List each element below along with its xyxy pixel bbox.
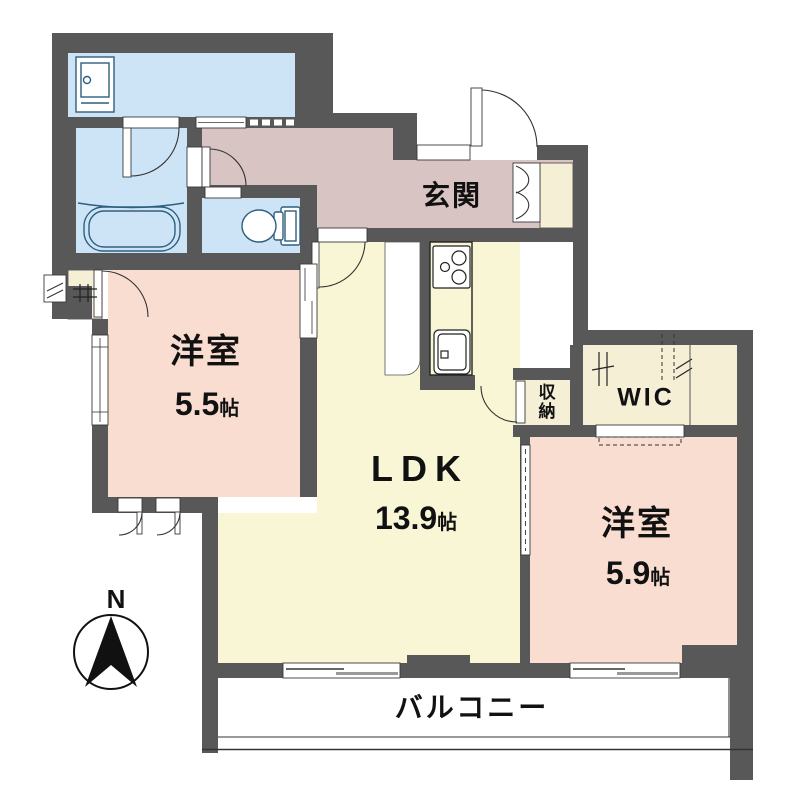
service-door-opening [118,498,142,512]
ldk-size-unit: 帖 [437,512,457,534]
kitchen-pass-counter [385,242,420,375]
entrance-label: 玄関 [422,182,482,210]
bedroom-east-size-label: 5.9帖 [606,557,670,589]
wall-dash [262,120,270,126]
bathroom-door-opening [123,117,179,128]
wic-label: WIC [617,386,675,411]
balcony-label: バルコニー [395,694,549,722]
bedroom-west-floor [108,270,300,497]
entrance-door-swing [482,90,537,147]
ldk-size-value: 13.9 [375,500,437,536]
bedroom-east-size-value: 5.9 [606,555,650,591]
ldk-label: LDK [371,451,469,487]
kitchen-counter [430,242,472,375]
washroom-door-opening [187,147,202,187]
entrance-step [417,145,470,160]
wall-dash [286,120,294,126]
bedroom-east-size-unit: 帖 [650,567,670,589]
entrance-door-leaf [471,88,482,146]
bathroom-door-leaf [123,128,131,177]
ldk-floor [218,513,317,663]
hallway-floor [202,128,333,185]
bedroom-west-label: 洋室 [170,335,242,369]
compass-north-label: N [107,586,126,612]
toilet-door-opening [205,187,241,198]
ldk-door-opening [318,228,367,242]
ldk-size-label: 13.9帖 [375,502,457,534]
wall-dash [274,120,282,126]
floorplan: 玄関 LDK 13.9帖 洋室 5.5帖 洋室 5.9帖 収納 WIC バルコニ… [0,0,800,800]
compass-icon [74,615,148,689]
service-door-opening [156,498,180,512]
storage-label: 収納 [537,383,554,421]
storage-door-leaf [516,381,525,423]
stove-icon [433,246,470,288]
bedroom-east-floor [530,437,737,663]
floorplan-drawing [0,0,800,800]
washroom-door-leaf [202,147,210,187]
closet-door-leaf [94,270,102,317]
bedroom-east-balcony-window [570,663,680,678]
bedroom-east-label: 洋室 [601,507,673,541]
wall-dash [250,120,258,126]
washroom-lower-floor [76,128,187,200]
vanity-sink-icon [76,57,114,112]
ldk-balcony-window [283,663,400,678]
shoe-cabinet [540,163,573,228]
hallway-floor [317,128,400,228]
wic-opening [596,425,684,437]
bedroom-west-sliding-door [300,264,317,338]
bedroom-west-size-label: 5.5帖 [175,388,239,420]
kitchen-sink-icon [434,330,470,374]
bedroom-west-size-unit: 帖 [219,398,239,420]
bedroom-west-size-value: 5.5 [175,386,219,422]
